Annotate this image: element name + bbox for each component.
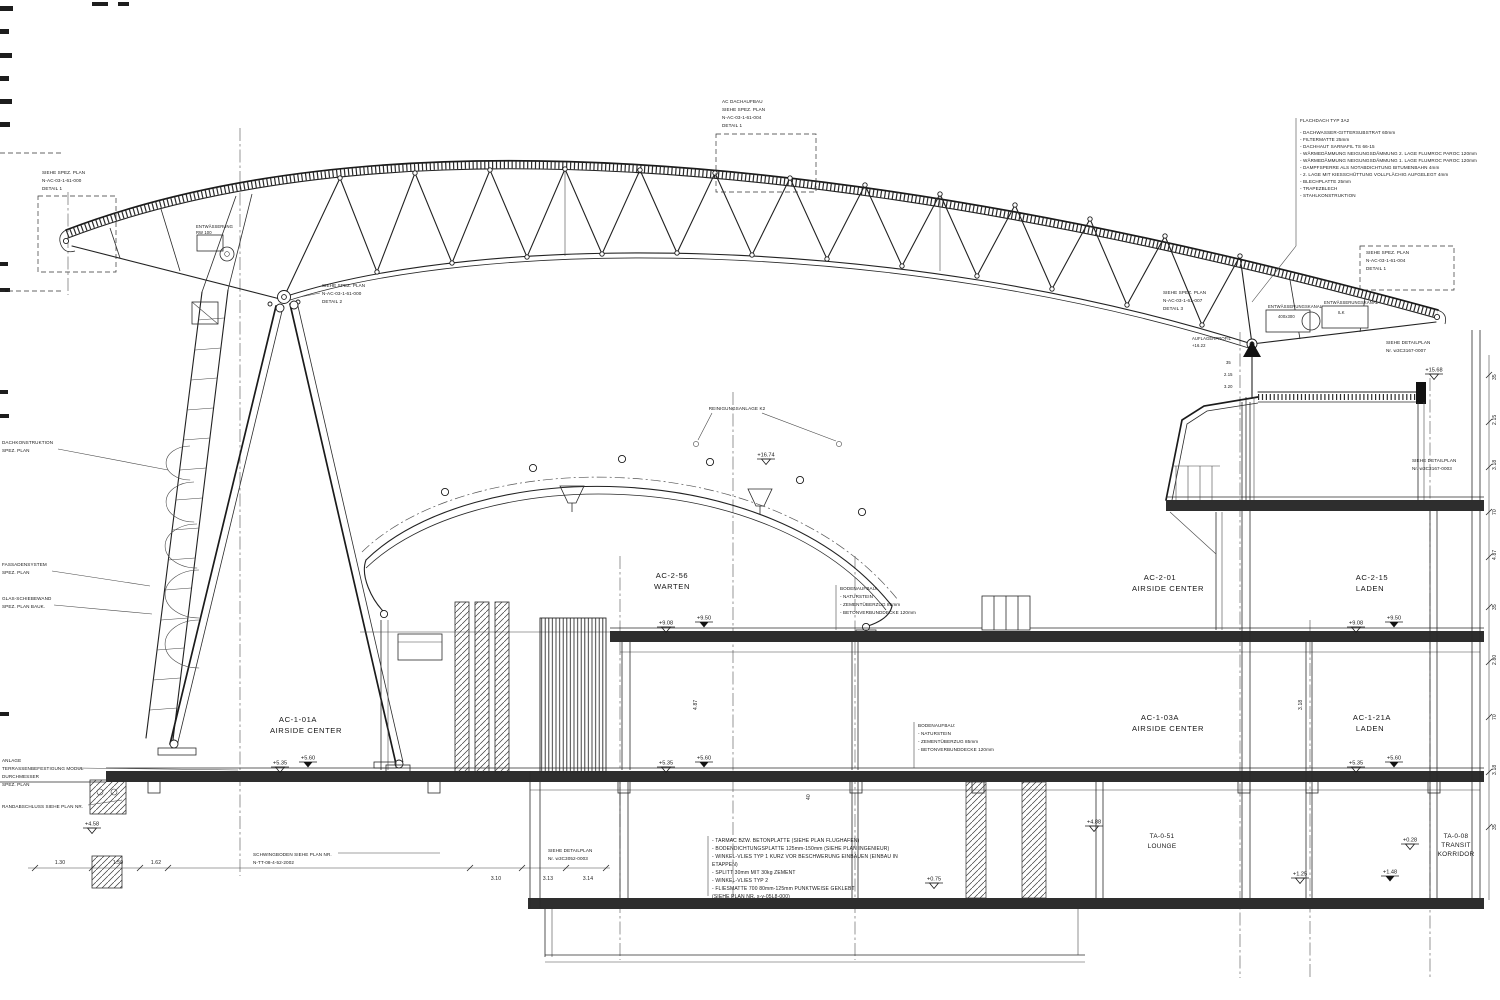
- svg-text:SIEHE SPEZ. PLAN: SIEHE SPEZ. PLAN: [1366, 250, 1409, 255]
- dim-label: 35: [1492, 374, 1498, 380]
- svg-text:- TARMAC BZW. BETONPLATTE (SIE: - TARMAC BZW. BETONPLATTE (SIEHE PLAN FL…: [712, 838, 860, 844]
- elev-marker: +5.35: [1347, 761, 1365, 773]
- svg-text:+5.35: +5.35: [659, 761, 673, 767]
- masonry-wall-1: [966, 782, 986, 898]
- note-flachdach: FLACHDACH TYP 3A2 - DACHWASSER-GITTERSUB…: [1252, 118, 1477, 302]
- svg-text:- BETONVERBUNDDECKE 120mm: - BETONVERBUNDDECKE 120mm: [918, 747, 994, 752]
- svg-text:ETAPPEN): ETAPPEN): [712, 862, 738, 868]
- dim-label: 4.87: [1492, 550, 1498, 560]
- svg-text:- WÄRMEDÄMMUNG NEIGUNGSDÄMMUNG: - WÄRMEDÄMMUNG NEIGUNGSDÄMMUNG 2. LAGE F…: [1300, 150, 1477, 156]
- masonry-wall-2: [1022, 782, 1046, 898]
- note-tarmac: - TARMAC BZW. BETONPLATTE (SIEHE PLAN FL…: [708, 836, 898, 900]
- svg-text:SIEHE SPEZ. PLAN: SIEHE SPEZ. PLAN: [322, 283, 365, 288]
- note-roof-drain: ENTWÄSSERUNG: [196, 224, 233, 229]
- parapet-block: [1416, 382, 1426, 404]
- room-name: LOUNGE: [1148, 843, 1177, 850]
- svg-text:DETAIL 3: DETAIL 3: [1163, 306, 1184, 311]
- svg-text:+16.22: +16.22: [1192, 343, 1206, 348]
- inner-glass-arch: [360, 455, 898, 770]
- section-drawing-sheet: 1.30 1.50 1.62 3.10 3.13 3.14 35 2.15 3.…: [0, 0, 1500, 1000]
- svg-text:DETAIL 1: DETAIL 1: [1366, 266, 1387, 271]
- dim-label: 35: [1492, 824, 1498, 830]
- roof-drain-outlet: [220, 247, 234, 261]
- svg-text:N-TT-08-4-52-2002: N-TT-08-4-52-2002: [253, 860, 294, 865]
- ref-detail-r2: SIEHE DETAILPLAN Nr. w3C3167-0003: [1412, 458, 1456, 471]
- svg-text:- WÄRMEDÄMMUNG NEIGUNGSDÄMMUNG: - WÄRMEDÄMMUNG NEIGUNGSDÄMMUNG 1. LAGE F…: [1300, 157, 1477, 163]
- svg-text:- DACHHAUT SARNAFIL TS 66-15: - DACHHAUT SARNAFIL TS 66-15: [1300, 144, 1375, 149]
- room-name: LADEN: [1356, 584, 1384, 593]
- terrace-slab: [1166, 500, 1484, 511]
- terrace-railing: [1172, 466, 1220, 500]
- svg-text:+16.74: +16.74: [757, 453, 774, 459]
- svg-text:TERRASSENBEFESTIGUNG MODUL: TERRASSENBEFESTIGUNG MODUL: [2, 766, 84, 771]
- elev-marker: +9.50: [1385, 616, 1403, 628]
- downstand-beams: [148, 781, 1440, 793]
- svg-text:SIEHE DETAILPLAN: SIEHE DETAILPLAN: [548, 848, 592, 853]
- foundation-block: [90, 780, 126, 814]
- svg-text:+0.28: +0.28: [1403, 838, 1417, 844]
- dim-label: 1.62: [151, 860, 161, 866]
- svg-text:SIEHE DETAILPLAN: SIEHE DETAILPLAN: [1386, 340, 1430, 345]
- svg-text:SCHWINGBODEN SIEHE PLAN NR.: SCHWINGBODEN SIEHE PLAN NR.: [253, 852, 332, 857]
- room-id: TA-0-51: [1150, 833, 1175, 840]
- elev-marker: +5.60: [299, 756, 317, 768]
- elev-marker: +0.75: [925, 877, 943, 889]
- svg-text:SIEHE SPEZ. PLAN: SIEHE SPEZ. PLAN: [722, 107, 765, 112]
- svg-text:REINIGUNGSANLAGE K2: REINIGUNGSANLAGE K2: [709, 406, 766, 411]
- note-reinigung: REINIGUNGSANLAGE K2: [693, 406, 841, 447]
- elev-marker: +15.68: [1425, 368, 1443, 380]
- ref-right: SIEHE SPEZ. PLAN N-AC-03-1-61-007 DETAIL…: [1163, 290, 1206, 311]
- left-support-structure: [0, 194, 410, 888]
- elev-marker: +16.74: [757, 453, 775, 465]
- svg-text:ANLAGE: ANLAGE: [2, 758, 21, 763]
- margin-dach: DACHKONSTRUKTION SPEZ. PLAN: [2, 440, 168, 470]
- svg-text:+5.60: +5.60: [1387, 756, 1401, 762]
- right-main-node: [1243, 339, 1261, 397]
- room-name: WARTEN: [654, 582, 690, 591]
- dim-label: 2.15: [1224, 372, 1233, 377]
- svg-text:- 2. LAGE MIT KIESSCHÜTTUNG VO: - 2. LAGE MIT KIESSCHÜTTUNG VOLLFLÄCHIG …: [1300, 171, 1448, 177]
- dim-label: 70: [1492, 509, 1498, 515]
- svg-text:- WINKEL-VLIES TYP 2: - WINKEL-VLIES TYP 2: [712, 878, 768, 884]
- svg-text:- FLIESMATTE 700 80mm-125mm PU: - FLIESMATTE 700 80mm-125mm PUNKTWEISE G…: [712, 886, 855, 892]
- svg-text:N-AC-03-1-61-004: N-AC-03-1-61-004: [1366, 258, 1406, 263]
- dim-label: 4.87: [693, 700, 699, 710]
- svg-text:RW 100: RW 100: [196, 230, 212, 235]
- svg-text:+9.50: +9.50: [1387, 616, 1401, 622]
- svg-text:Nr. w3C3167-0003: Nr. w3C3167-0003: [1412, 466, 1452, 471]
- svg-text:N-AC-03-1-61-000: N-AC-03-1-61-000: [322, 291, 362, 296]
- level2-slab: [610, 631, 1484, 642]
- svg-text:BODENAUFBAU:: BODENAUFBAU:: [918, 723, 955, 728]
- room-name: KORRIDOR: [1438, 851, 1475, 858]
- svg-text:BODENAUFBAU:: BODENAUFBAU:: [840, 586, 877, 591]
- dim-label: 3.18: [1492, 460, 1498, 470]
- room-name: LADEN: [1356, 724, 1384, 733]
- svg-text:- BLECHPLATTE 25mm: - BLECHPLATTE 25mm: [1300, 179, 1351, 184]
- svg-text:GLAS-SCHIEBEWAND: GLAS-SCHIEBEWAND: [2, 596, 52, 601]
- svg-text:- FILTERMATTE 25mm: - FILTERMATTE 25mm: [1300, 137, 1349, 142]
- note-entw2: ENTWÄSSERUNGSKANAL: [1324, 300, 1379, 305]
- svg-text:- STAHLKONSTRUKTION: - STAHLKONSTRUKTION: [1300, 193, 1356, 198]
- svg-text:- DAMPFSPERRE ALS NOTABDICHTUN: - DAMPFSPERRE ALS NOTABDICHTUNG BITUMENB…: [1300, 165, 1439, 170]
- svg-text:(SIEHE PLAN NR. x-y-05L8-000): (SIEHE PLAN NR. x-y-05L8-000): [712, 894, 790, 900]
- svg-text:- ZEMENTÜBERZUG 85mm: - ZEMENTÜBERZUG 85mm: [840, 601, 900, 607]
- svg-text:SPEZ. PLAN: SPEZ. PLAN: [2, 782, 30, 787]
- truss-node-pins: [338, 167, 1242, 327]
- svg-text:- BODENDICHTUNGSPLATTE 125mm-1: - BODENDICHTUNGSPLATTE 125mm-150mm (SIEH…: [712, 846, 890, 852]
- svg-text:DETAIL 1: DETAIL 1: [42, 186, 63, 191]
- svg-text:SPEZ. PLAN: SPEZ. PLAN: [2, 570, 30, 575]
- dim-label: 2.15: [1492, 415, 1498, 425]
- strut-b: [290, 301, 410, 772]
- svg-text:- WINKEL-VLIES TYP 1 KURZ VOR: - WINKEL-VLIES TYP 1 KURZ VOR BESCHWERUN…: [712, 854, 898, 860]
- svg-text:DACHKONSTRUKTION: DACHKONSTRUKTION: [2, 440, 53, 445]
- svg-text:- BETONVERBUNDDECKE 120mm: - BETONVERBUNDDECKE 120mm: [840, 610, 916, 615]
- room-id: AC-2-56: [656, 571, 688, 580]
- dim-label: 70: [1492, 714, 1498, 720]
- elev-marker: +0.28: [1401, 838, 1419, 850]
- ref-detail-r1: SIEHE DETAILPLAN Nr. w3C3167-0007: [1386, 340, 1430, 353]
- svg-text:+5.60: +5.60: [697, 756, 711, 762]
- room-id: AC-1-21A: [1353, 713, 1391, 722]
- louvred-shaft: [540, 618, 606, 772]
- elev-marker: +9.08: [657, 621, 675, 633]
- dim-label: 3.10: [491, 876, 501, 882]
- dim-label: 1.30: [55, 860, 65, 866]
- svg-text:- SPLITT 30mm MIT 30kg ZEMENT: - SPLITT 30mm MIT 30kg ZEMENT: [712, 870, 796, 876]
- margin-fassade: FASSADENSYSTEM SPEZ. PLAN: [2, 562, 150, 586]
- note-auflager: AUFLAGERPROFIL: [1192, 336, 1232, 341]
- dim-label: 35: [1226, 360, 1231, 365]
- escalator-balustrades: [455, 602, 509, 772]
- svg-text:+1.48: +1.48: [1383, 870, 1397, 876]
- svg-text:DETAIL 2: DETAIL 2: [322, 299, 343, 304]
- elev-marker: +5.60: [695, 756, 713, 768]
- svg-text:+15.68: +15.68: [1425, 368, 1442, 374]
- svg-text:DETAIL 1: DETAIL 1: [722, 123, 743, 128]
- rooftop-unit: [982, 596, 1030, 630]
- room-name: TRANSIT: [1441, 842, 1470, 849]
- svg-text:DURCHMESSER: DURCHMESSER: [2, 774, 40, 779]
- dim-label: 1.50: [113, 860, 123, 866]
- svg-text:+4.58: +4.58: [85, 822, 99, 828]
- section-drawing-canvas: 1.30 1.50 1.62 3.10 3.13 3.14 35 2.15 3.…: [0, 0, 1500, 1000]
- svg-text:+5.35: +5.35: [1349, 761, 1363, 767]
- svg-text:Nr. w3C3167-0007: Nr. w3C3167-0007: [1386, 348, 1426, 353]
- room-id: AC-1-01A: [279, 715, 317, 724]
- svg-text:+5.60: +5.60: [301, 756, 315, 762]
- room-name: AIRSIDE CENTER: [1132, 724, 1204, 733]
- level1-slab: [106, 771, 1484, 782]
- svg-text:+4.88: +4.88: [1087, 820, 1101, 826]
- svg-text:+0.75: +0.75: [927, 877, 941, 883]
- arch-funnel-left: [560, 486, 584, 512]
- svg-text:FLACHDACH TYP 3A2: FLACHDACH TYP 3A2: [1300, 118, 1350, 123]
- ref-roof-top: AC DACHAUFBAU SIEHE SPEZ. PLAN N-AC-03-1…: [716, 99, 816, 192]
- ref-node: SIEHE SPEZ. PLAN N-AC-03-1-61-000 DETAIL…: [300, 283, 365, 304]
- columns-upper: [622, 330, 1480, 898]
- svg-text:- NATURSTEIN: - NATURSTEIN: [840, 594, 873, 599]
- svg-text:+9.08: +9.08: [1349, 621, 1363, 627]
- elev-marker: +5.60: [1385, 756, 1403, 768]
- dim-label: 35: [1492, 604, 1498, 610]
- svg-text:N-AC-03-1-61-004: N-AC-03-1-61-004: [722, 115, 762, 120]
- bench-detail: [398, 634, 442, 660]
- svg-text:RANDABSCHLUSS SIEHE PLAN NR.: RANDABSCHLUSS SIEHE PLAN NR.: [2, 804, 83, 809]
- svg-text:SPEZ. PLAN BAUK.: SPEZ. PLAN BAUK.: [2, 604, 45, 609]
- dim-label: 40: [806, 794, 812, 800]
- elev-marker: +1.48: [1381, 870, 1399, 882]
- roof-truss: [60, 161, 1446, 397]
- room-name: AIRSIDE CENTER: [270, 726, 342, 735]
- room-id: AC-2-15: [1356, 573, 1388, 582]
- reference-notes: AC DACHAUFBAU SIEHE SPEZ. PLAN N-AC-03-1…: [38, 99, 1456, 865]
- ref-far-right: SIEHE SPEZ. PLAN N-AC-03-1-61-004 DETAIL…: [1360, 246, 1454, 290]
- svg-text:SPEZ. PLAN: SPEZ. PLAN: [2, 448, 30, 453]
- svg-text:+9.08: +9.08: [659, 621, 673, 627]
- dim-label: 3.14: [583, 876, 593, 882]
- room-name: AIRSIDE CENTER: [1132, 584, 1204, 593]
- roof-drain-channels: [1266, 306, 1368, 332]
- mast-rungs: [150, 318, 224, 710]
- elev-marker: +5.35: [657, 761, 675, 773]
- svg-text:Nr. w3C3052-0003: Nr. w3C3052-0003: [548, 856, 588, 861]
- floor-structure: [106, 330, 1484, 962]
- svg-text:- NATURSTEIN: - NATURSTEIN: [918, 731, 951, 736]
- basement-slab: [528, 898, 1484, 909]
- svg-text:FASSADENSYSTEM: FASSADENSYSTEM: [2, 562, 47, 567]
- svg-text:N-AC-03-1-61-007: N-AC-03-1-61-007: [1163, 298, 1203, 303]
- note-boden-l1: BODENAUFBAU: - NATURSTEIN - ZEMENTÜBERZU…: [914, 722, 994, 768]
- svg-text:- TRAPEZBLECH: - TRAPEZBLECH: [1300, 186, 1337, 191]
- room-id: AC-1-03A: [1141, 713, 1179, 722]
- elev-marker: +5.35: [271, 761, 289, 773]
- ref-schwingboden: SCHWINGBODEN SIEHE PLAN NR. N-TT-08-4-52…: [253, 852, 440, 865]
- svg-text:ILK: ILK: [1338, 310, 1345, 315]
- dim-label: 2.80: [1492, 655, 1498, 665]
- dim-label: 3.18: [1298, 700, 1304, 710]
- elev-marker: +9.08: [1347, 621, 1365, 633]
- room-id: TA-0-08: [1444, 833, 1469, 840]
- elev-marker: +9.50: [695, 616, 713, 628]
- margin-schiebewand: GLAS-SCHIEBEWAND SPEZ. PLAN BAUK.: [2, 596, 152, 614]
- svg-text:N-AC-03-1-61-000: N-AC-03-1-61-000: [42, 178, 82, 183]
- elev-marker: +4.58: [83, 822, 101, 834]
- note-entw1: ENTWÄSSERUNGSKANAL: [1268, 304, 1323, 309]
- svg-text:SIEHE DETAILPLAN: SIEHE DETAILPLAN: [1412, 458, 1456, 463]
- svg-text:+1.25: +1.25: [1293, 872, 1307, 878]
- dim-label: 3.20: [1224, 384, 1233, 389]
- dim-label: 3.13: [543, 876, 553, 882]
- ref-detail-b: SIEHE DETAILPLAN Nr. w3C3052-0003: [548, 848, 592, 861]
- svg-text:AC DACHAUFBAU: AC DACHAUFBAU: [722, 99, 763, 104]
- svg-text:- ZEMENTÜBERZUG 85mm: - ZEMENTÜBERZUG 85mm: [918, 738, 978, 744]
- svg-text:+5.35: +5.35: [273, 761, 287, 767]
- svg-text:SIEHE SPEZ. PLAN: SIEHE SPEZ. PLAN: [1163, 290, 1206, 295]
- elev-marker: +4.88: [1085, 820, 1103, 832]
- svg-text:400x300: 400x300: [1278, 314, 1295, 319]
- svg-text:+9.50: +9.50: [697, 616, 711, 622]
- dim-label: 3.18: [1492, 765, 1498, 775]
- svg-text:SIEHE SPEZ. PLAN: SIEHE SPEZ. PLAN: [42, 170, 85, 175]
- dimensions: 1.30 1.50 1.62 3.10 3.13 3.14 35 2.15 3.…: [28, 355, 1498, 900]
- room-id: AC-2-01: [1144, 573, 1176, 582]
- spiral-stair: [165, 446, 199, 668]
- svg-text:- DACHWASSER-GITTERSUBSTRAT 60: - DACHWASSER-GITTERSUBSTRAT 60mm: [1300, 130, 1395, 135]
